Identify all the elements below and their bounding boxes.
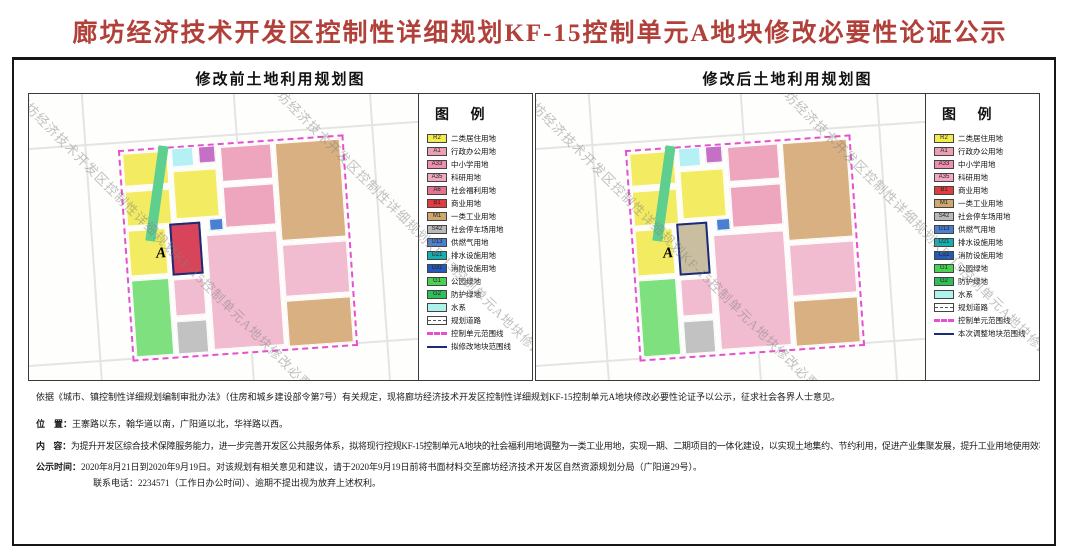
legend-row: U21排水设施用地 <box>427 250 528 261</box>
legend-label: 商业用地 <box>451 198 481 209</box>
legend-label: 社会停车场用地 <box>451 224 504 235</box>
legend-swatch: G1 <box>427 277 447 286</box>
legend-row: A1行政办公用地 <box>427 146 528 157</box>
parcel <box>789 240 857 296</box>
road-line <box>587 94 611 380</box>
legend-swatch: S42 <box>934 212 954 221</box>
map-title-before: 修改前土地利用规划图 <box>28 68 533 89</box>
legend-label: 二类居住用地 <box>958 133 1003 144</box>
legend-swatch: A33 <box>427 160 447 169</box>
legend-row: U31消防设施用地 <box>934 250 1035 261</box>
legend-swatch: U21 <box>934 238 954 247</box>
legend-swatch: M1 <box>427 212 447 221</box>
road-line <box>368 94 392 380</box>
parcel <box>683 319 716 354</box>
notice-intro: 依据《城市、镇控制性详细规划编制审批办法》（住房和城乡建设部令第7号）有关规定，… <box>36 392 1040 404</box>
legend-row: 本次调整地块范围线 <box>934 328 1035 339</box>
legend-label: 一类工业用地 <box>451 211 496 222</box>
parcel <box>793 296 860 346</box>
legend-after: 图 例 R2二类居住用地A1行政办公用地A33中小学用地A35科研用地B1商业用… <box>925 94 1039 380</box>
legend-label: 规划道路 <box>451 315 481 326</box>
panel-before: 修改前土地利用规划图 A 图 例 R2二类居住用地A1行政办公用地A33中小学用… <box>28 68 533 381</box>
legend-title: 图 例 <box>942 104 1035 124</box>
legend-swatch: U31 <box>427 264 447 273</box>
legend-row: 规划道路 <box>934 302 1035 313</box>
legend-items: R2二类居住用地A1行政办公用地A33中小学用地A35科研用地B1商业用地M1一… <box>934 133 1035 339</box>
legend-swatch <box>934 316 954 325</box>
legend-label: 公园绿地 <box>451 276 481 287</box>
map-canvas-after: A <box>536 94 925 380</box>
page-title: 廊坊经济技术开发区控制性详细规划KF-15控制单元A地块修改必要性论证公示 <box>0 13 1080 49</box>
legend-swatch: A35 <box>427 173 447 182</box>
legend-swatch: A1 <box>934 147 954 156</box>
legend-label: 拟修改地块范围线 <box>451 341 511 352</box>
parcel <box>220 144 273 183</box>
parcel <box>131 278 174 357</box>
legend-row: 控制单元范围线 <box>934 315 1035 326</box>
content-label: 内 容： <box>36 441 71 451</box>
legend-swatch: G2 <box>427 290 447 299</box>
contact-text: 联系电话：2234571（工作日办公时间）、逾期不提出视为放弃上述权利。 <box>93 478 381 488</box>
parcel-a <box>677 221 712 275</box>
legend-label: 水系 <box>958 289 973 300</box>
legend-row: G2防护绿地 <box>934 276 1035 287</box>
legend-row: G2防护绿地 <box>427 289 528 300</box>
legend-swatch: G2 <box>934 277 954 286</box>
legend-row: U21排水设施用地 <box>934 237 1035 248</box>
legend-before: 图 例 R2二类居住用地A1行政办公用地A33中小学用地A35科研用地A6社会福… <box>418 94 532 380</box>
parcel <box>209 218 223 231</box>
road-line <box>80 94 104 380</box>
legend-label: 本次调整地块范围线 <box>958 328 1026 339</box>
parcel <box>275 139 346 241</box>
legend-swatch <box>934 329 954 338</box>
parcel <box>286 296 353 346</box>
legend-label: 一类工业用地 <box>958 198 1003 209</box>
time-text: 2020年8月21日到2020年9月19日。对该规划有相关意见和建议，请于202… <box>81 462 702 472</box>
legend-row: 拟修改地块范围线 <box>427 341 528 352</box>
parcel <box>282 240 350 296</box>
parcel <box>678 147 701 167</box>
parcel <box>705 145 724 163</box>
parcel <box>727 144 780 183</box>
notice-text: 依据《城市、镇控制性详细规划编制审批办法》（住房和城乡建设部令第7号）有关规定，… <box>36 392 1040 489</box>
control-unit-boundary: A <box>625 134 865 361</box>
legend-label: 中小学用地 <box>451 159 489 170</box>
legend-label: 供燃气用地 <box>958 224 996 235</box>
map-box-after: A 图 例 R2二类居住用地A1行政办公用地A33中小学用地A35科研用地B1商… <box>535 93 1040 381</box>
map-canvas-before: A <box>29 94 418 380</box>
control-unit-boundary: A <box>118 134 358 361</box>
legend-row: S42社会停车场用地 <box>427 224 528 235</box>
legend-swatch: B1 <box>427 199 447 208</box>
parcel <box>173 168 221 219</box>
legend-label: 商业用地 <box>958 185 988 196</box>
parcel-a-label: A <box>662 245 673 263</box>
location-text: 王寨路以东，翰华道以南，广阳道以北，华祥路以西。 <box>72 419 288 429</box>
time-label: 公示时间： <box>36 462 81 472</box>
legend-row: R2二类居住用地 <box>427 133 528 144</box>
legend-row: B1商业用地 <box>934 185 1035 196</box>
legend-swatch: R2 <box>934 134 954 143</box>
legend-label: 控制单元范围线 <box>958 315 1011 326</box>
legend-row: G1公园绿地 <box>427 276 528 287</box>
notice-time: 公示时间：2020年8月21日到2020年9月19日。对该规划有相关意见和建议，… <box>36 462 1040 474</box>
legend-swatch: R2 <box>427 134 447 143</box>
parcel-a <box>170 221 205 275</box>
parcel <box>716 218 730 231</box>
legend-swatch: A1 <box>427 147 447 156</box>
legend-swatch: U13 <box>427 238 447 247</box>
legend-row: 水系 <box>934 289 1035 300</box>
map-title-after: 修改后土地利用规划图 <box>535 68 1040 89</box>
legend-swatch: A6 <box>427 186 447 195</box>
legend-swatch: U21 <box>427 251 447 260</box>
parcel <box>730 183 784 228</box>
legend-swatch <box>427 316 447 325</box>
parcel <box>198 145 217 163</box>
parcel <box>176 319 209 354</box>
parcel <box>638 278 681 357</box>
parcel <box>171 147 194 167</box>
road-line <box>875 94 899 380</box>
legend-items: R2二类居住用地A1行政办公用地A33中小学用地A35科研用地A6社会福利用地B… <box>427 133 528 352</box>
legend-row: A33中小学用地 <box>427 159 528 170</box>
legend-label: 控制单元范围线 <box>451 328 504 339</box>
parcel <box>680 168 728 219</box>
legend-row: M1一类工业用地 <box>427 211 528 222</box>
legend-swatch: A35 <box>934 173 954 182</box>
content-frame: 修改前土地利用规划图 A 图 例 R2二类居住用地A1行政办公用地A33中小学用… <box>12 57 1056 546</box>
legend-row: M1一类工业用地 <box>934 198 1035 209</box>
legend-row: A33中小学用地 <box>934 159 1035 170</box>
legend-swatch: G1 <box>934 264 954 273</box>
legend-label: 二类居住用地 <box>451 133 496 144</box>
legend-row: A6社会福利用地 <box>427 185 528 196</box>
legend-label: 行政办公用地 <box>451 146 496 157</box>
legend-label: 消防设施用地 <box>958 250 1003 261</box>
legend-row: S42社会停车场用地 <box>934 211 1035 222</box>
legend-swatch <box>934 290 954 299</box>
legend-row: 规划道路 <box>427 315 528 326</box>
notice-intro-text: 依据《城市、镇控制性详细规划编制审批办法》（住房和城乡建设部令第7号）有关规定，… <box>36 392 840 402</box>
legend-swatch: U13 <box>934 225 954 234</box>
legend-label: 防护绿地 <box>958 276 988 287</box>
legend-row: G1公园绿地 <box>934 263 1035 274</box>
legend-swatch: A33 <box>934 160 954 169</box>
legend-row: A35科研用地 <box>934 172 1035 183</box>
parcel <box>223 183 277 228</box>
legend-label: 规划道路 <box>958 302 988 313</box>
legend-swatch: B1 <box>934 186 954 195</box>
notice-location: 位 置：王寨路以东，翰华道以南，广阳道以北，华祥路以西。 <box>36 419 1040 431</box>
parcel <box>173 277 207 317</box>
map-box-before: A 图 例 R2二类居住用地A1行政办公用地A33中小学用地A35科研用地A6社… <box>28 93 533 381</box>
legend-row: B1商业用地 <box>427 198 528 209</box>
legend-label: 科研用地 <box>958 172 988 183</box>
notice-content: 内 容：为提升开发区综合技术保障服务能力，进一步完善开发区公共服务体系，拟将现行… <box>36 441 1040 453</box>
legend-swatch: U31 <box>934 251 954 260</box>
parcel <box>782 139 853 241</box>
legend-row: 水系 <box>427 302 528 313</box>
parcel-a-label: A <box>155 245 166 263</box>
legend-row: 控制单元范围线 <box>427 328 528 339</box>
content-text: 为提升开发区综合技术保障服务能力，进一步完善开发区公共服务体系，拟将现行控规KF… <box>71 441 1040 451</box>
legend-label: 科研用地 <box>451 172 481 183</box>
parcel <box>680 277 714 317</box>
legend-swatch: M1 <box>934 199 954 208</box>
panel-after: 修改后土地利用规划图 A 图 例 R2二类居住用地A1行政办公用地A33中小学用… <box>535 68 1040 381</box>
legend-title: 图 例 <box>435 104 528 124</box>
legend-swatch <box>934 303 954 312</box>
legend-swatch <box>427 329 447 338</box>
legend-label: 中小学用地 <box>958 159 996 170</box>
legend-label: 消防设施用地 <box>451 263 496 274</box>
legend-label: 排水设施用地 <box>451 250 496 261</box>
legend-swatch: S42 <box>427 225 447 234</box>
legend-label: 防护绿地 <box>451 289 481 300</box>
legend-swatch <box>427 342 447 351</box>
parcel <box>713 231 792 350</box>
location-label: 位 置： <box>36 419 72 429</box>
legend-label: 排水设施用地 <box>958 237 1003 248</box>
legend-row: R2二类居住用地 <box>934 133 1035 144</box>
legend-row: U13供燃气用地 <box>427 237 528 248</box>
legend-row: U13供燃气用地 <box>934 224 1035 235</box>
legend-swatch <box>427 303 447 312</box>
parcel <box>206 231 285 350</box>
legend-label: 社会福利用地 <box>451 185 496 196</box>
legend-row: A35科研用地 <box>427 172 528 183</box>
notice-contact: 联系电话：2234571（工作日办公时间）、逾期不提出视为放弃上述权利。 <box>36 478 1040 490</box>
legend-row: U31消防设施用地 <box>427 263 528 274</box>
legend-label: 公园绿地 <box>958 263 988 274</box>
legend-label: 社会停车场用地 <box>958 211 1011 222</box>
legend-label: 供燃气用地 <box>451 237 489 248</box>
legend-label: 行政办公用地 <box>958 146 1003 157</box>
legend-row: A1行政办公用地 <box>934 146 1035 157</box>
legend-label: 水系 <box>451 302 466 313</box>
